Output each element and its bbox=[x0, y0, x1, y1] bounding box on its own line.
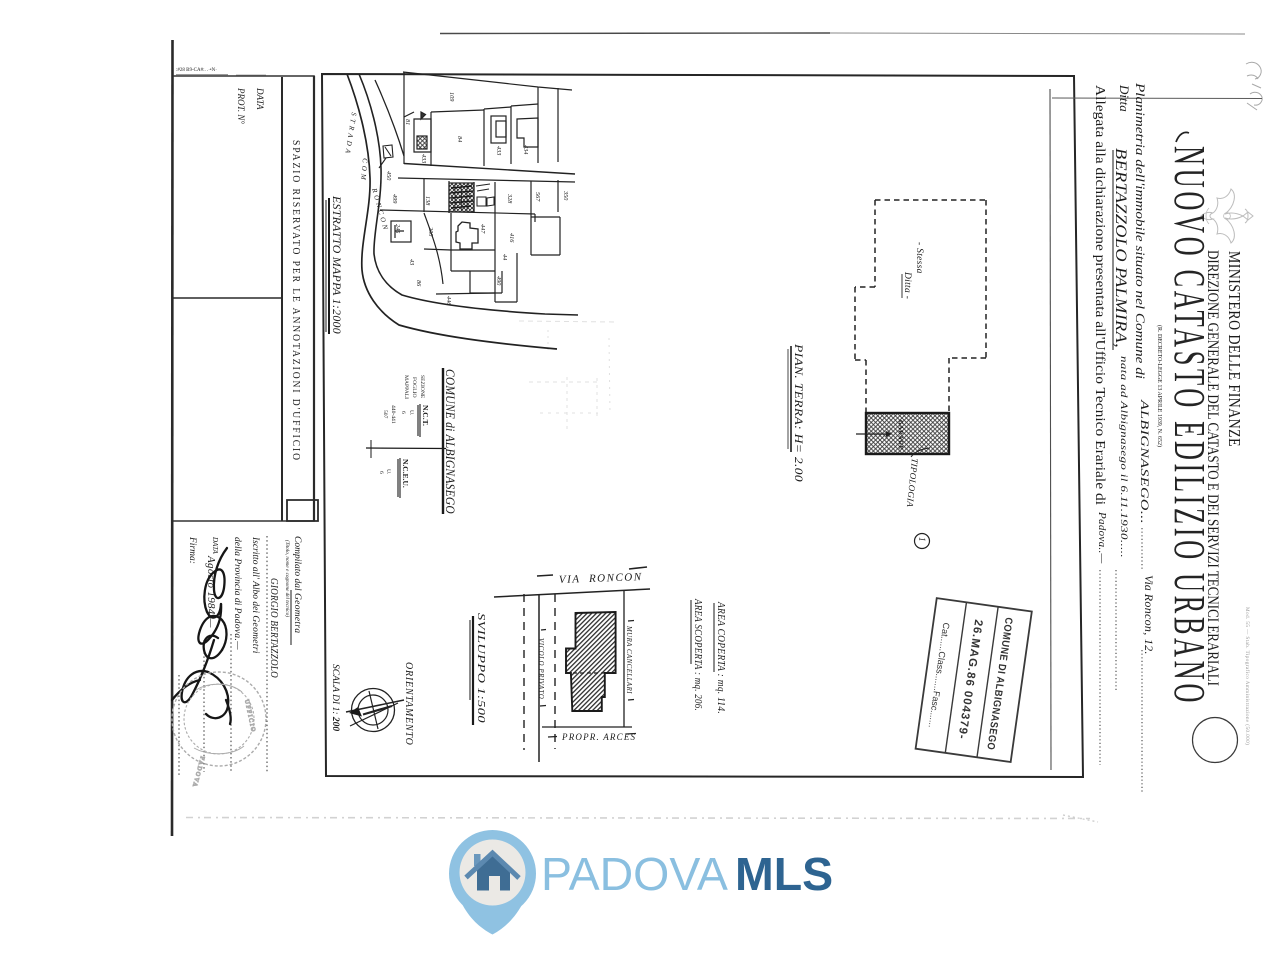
svg-text:MAPPALI: MAPPALI bbox=[403, 375, 409, 399]
svg-text:ESTRATTO MAPPA 1:2000: ESTRATTO MAPPA 1:2000 bbox=[330, 195, 342, 334]
svg-text:COMUNE di ALBIGNASEGO: COMUNE di ALBIGNASEGO bbox=[443, 369, 458, 514]
svg-text:PROT. N°: PROT. N° bbox=[236, 87, 246, 124]
svg-text:DATA: DATA bbox=[255, 87, 265, 110]
svg-text:44: 44 bbox=[501, 254, 508, 260]
svg-text:446: 446 bbox=[445, 296, 452, 306]
svg-text:N.C.E.U.: N.C.E.U. bbox=[401, 459, 410, 488]
svg-text:MURA CANCELLARI: MURA CANCELLARI bbox=[625, 625, 632, 694]
svg-text:SVILUPPO 1:500: SVILUPPO 1:500 bbox=[475, 613, 486, 724]
svg-text:447: 447 bbox=[479, 224, 486, 234]
svg-text:SEZIONE: SEZIONE bbox=[419, 375, 425, 399]
svg-text:nata ad Albignasego il 6.11.19: nata ad Albignasego il 6.11.1930..... bbox=[1118, 356, 1128, 558]
svg-text:138: 138 bbox=[424, 196, 431, 206]
svg-text:490: 490 bbox=[495, 276, 502, 286]
svg-text:ALBIGNASEGO...: ALBIGNASEGO... bbox=[1138, 399, 1152, 524]
svg-text:(R. DECRETO-LEGGE 13 APRILE 19: (R. DECRETO-LEGGE 13 APRILE 1939, N. 652… bbox=[1156, 325, 1163, 447]
svg-text:PROPR. ARCES: PROPR. ARCES bbox=[561, 732, 636, 742]
svg-text:(Titolo, nome e cognome del te: (Titolo, nome e cognome del tecnico) bbox=[284, 540, 291, 617]
svg-text:Firma:: Firma: bbox=[187, 536, 197, 564]
svg-text:245: 245 bbox=[394, 224, 401, 233]
svg-text:Mod. 55 — Stab. Tipografico Am: Mod. 55 — Stab. Tipografico Amministrazi… bbox=[1244, 607, 1251, 745]
svg-text:1: 1 bbox=[917, 537, 927, 542]
svg-text:433: 433 bbox=[495, 146, 502, 155]
svg-text:86: 86 bbox=[415, 280, 422, 287]
svg-text:BERTAZZOLO PALMIRA,: BERTAZZOLO PALMIRA, bbox=[1112, 148, 1129, 348]
svg-text:440-441: 440-441 bbox=[390, 405, 396, 424]
svg-text:PIAN. TERRA: H= 2.00: PIAN. TERRA: H= 2.00 bbox=[792, 343, 804, 482]
svg-text:AREA COPERTA : mq. 114.: AREA COPERTA : mq. 114. bbox=[715, 601, 726, 714]
svg-text:MINISTERO DELLE FINANZE: MINISTERO DELLE FINANZE bbox=[1225, 251, 1244, 447]
svg-text:Via Roncon, 12.: Via Roncon, 12. bbox=[1142, 575, 1156, 655]
svg-text:6: 6 bbox=[378, 471, 384, 474]
svg-text:Compilato dal Geometra: Compilato dal Geometra bbox=[292, 536, 302, 633]
svg-text::#28 B9-CA#:. .·•N·: :#28 B9-CA#:. .·•N· bbox=[176, 68, 217, 73]
svg-text:450: 450 bbox=[385, 171, 392, 181]
svg-text:AREA SCOPERTA : mq. 206.: AREA SCOPERTA : mq. 206. bbox=[692, 598, 703, 711]
svg-text:507: 507 bbox=[382, 410, 388, 419]
svg-text:- Stessa: - Stessa bbox=[914, 242, 924, 274]
svg-text:6: 6 bbox=[400, 411, 406, 414]
svg-text:NUOVO CATASTO EDILIZIO URBANO: NUOVO CATASTO EDILIZIO URBANO bbox=[1165, 146, 1214, 706]
svg-text:Iscritto all' Albo dei Geometr: Iscritto all' Albo dei Geometri bbox=[250, 536, 260, 654]
svg-text:VICOLO PRIVATO: VICOLO PRIVATO bbox=[537, 638, 544, 699]
svg-text:della Provincia di Padova.—: della Provincia di Padova.— bbox=[232, 537, 242, 650]
svg-text:Ditta: Ditta bbox=[1117, 84, 1132, 112]
svg-text:ORIENTAMENTO: ORIENTAMENTO bbox=[403, 662, 414, 746]
svg-text:328: 328 bbox=[506, 193, 513, 204]
svg-text:GARAGE: GARAGE bbox=[897, 420, 903, 450]
svg-text:PADOVA: PADOVA bbox=[541, 848, 728, 900]
svg-text:350: 350 bbox=[562, 190, 569, 201]
svg-text:416: 416 bbox=[508, 233, 515, 243]
svg-text:Planimetria dell'immobile situ: Planimetria dell'immobile situato nel Co… bbox=[1133, 82, 1148, 380]
svg-text:FOGLIO: FOGLIO bbox=[411, 377, 417, 398]
svg-text:567: 567 bbox=[534, 192, 541, 202]
svg-text:DATA: DATA bbox=[211, 536, 219, 554]
svg-text:84: 84 bbox=[456, 136, 463, 142]
svg-text:SPAZIO RISERVATO PER LE ANNOTA: SPAZIO RISERVATO PER LE ANNOTAZIONI D'UF… bbox=[290, 140, 302, 462]
svg-text:GIORGIO BERTAZZOLO: GIORGIO BERTAZZOLO bbox=[268, 578, 280, 678]
svg-text:109: 109 bbox=[448, 92, 455, 101]
svg-text:200: 200 bbox=[427, 227, 434, 237]
svg-text:433: 433 bbox=[420, 154, 427, 163]
svg-text:Ditta -: Ditta - bbox=[902, 271, 912, 299]
svg-text:Padova..—: Padova..— bbox=[1096, 511, 1108, 564]
svg-text:U.: U. bbox=[408, 410, 414, 416]
svg-text:SCALA DI 1: 200: SCALA DI 1: 200 bbox=[330, 664, 340, 731]
svg-text:81: 81 bbox=[404, 119, 411, 125]
svg-text:MLS: MLS bbox=[735, 848, 833, 900]
svg-text:N.C.T.: N.C.T. bbox=[421, 405, 430, 426]
svg-text:Allegata alla dichiarazione pr: Allegata alla dichiarazione presentata a… bbox=[1093, 85, 1108, 505]
svg-text:434: 434 bbox=[522, 145, 529, 154]
svg-text:499: 499 bbox=[391, 194, 398, 203]
svg-text:U.: U. bbox=[385, 469, 391, 475]
svg-text:43: 43 bbox=[408, 259, 415, 265]
